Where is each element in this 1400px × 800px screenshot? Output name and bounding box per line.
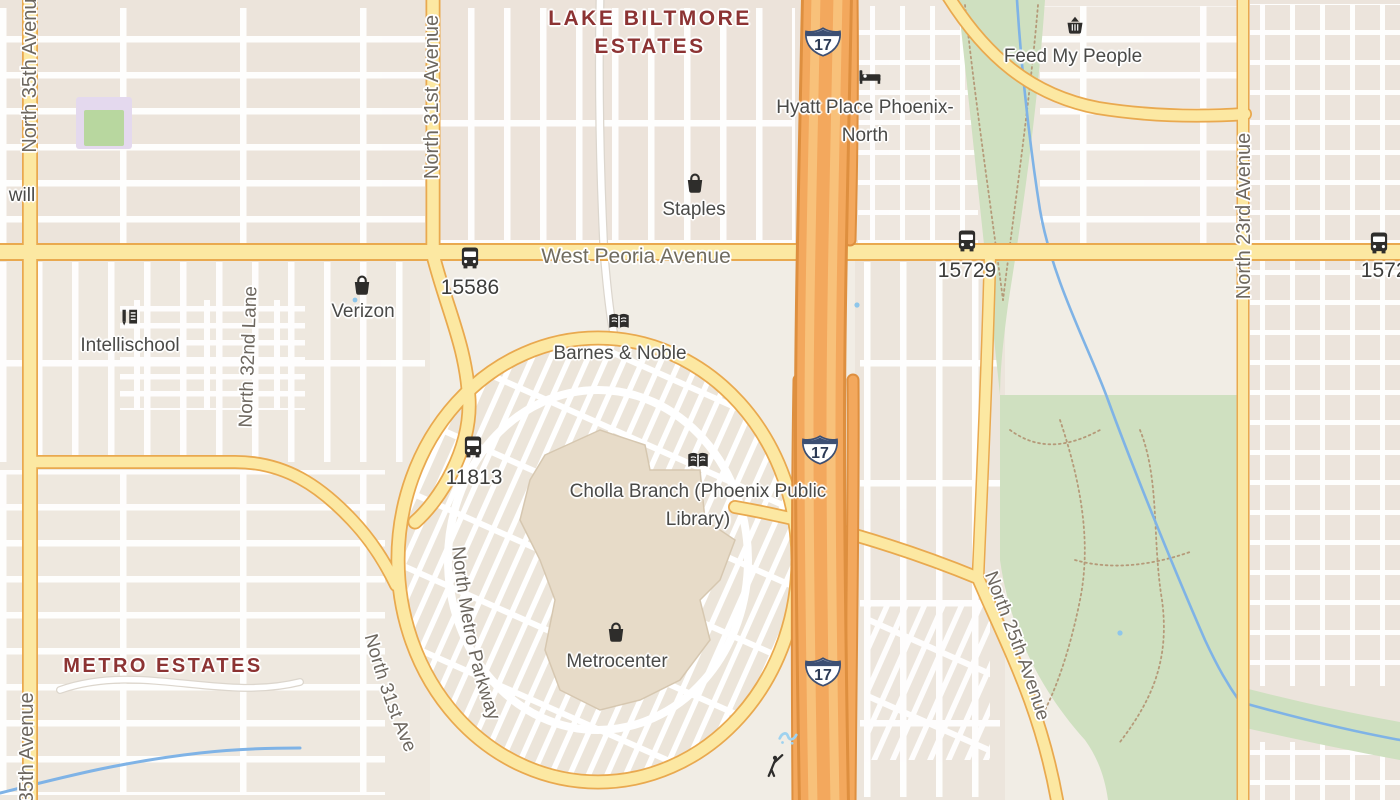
shopping-bag-icon	[604, 620, 628, 644]
hotel-icon	[858, 64, 882, 88]
school-field	[84, 110, 124, 146]
poi-label-metrocenter: Metrocenter	[566, 651, 667, 673]
bus-stop-icon	[457, 245, 483, 271]
poi-label-intellischool: Intellischool	[80, 335, 179, 357]
road-label-n35-bottom: North 35th Avenue	[16, 692, 38, 800]
poi-label-cholla-library: Cholla Branch (Phoenix Public Library)	[553, 478, 843, 534]
road-label-n31-top: North 31st Avenue	[421, 15, 443, 179]
poi-label-feed-my-people: Feed My People	[1004, 46, 1142, 68]
poi-label-goodwill-partial: will	[9, 185, 35, 207]
i17-shield-middle: 17	[802, 435, 838, 465]
poi-label-staples: Staples	[662, 199, 725, 221]
bus-stop-icon	[1366, 230, 1392, 256]
svg-text:17: 17	[814, 37, 832, 54]
bus-stop-icon	[460, 434, 486, 460]
poi-label-barnes-noble: Barnes & Noble	[553, 343, 686, 365]
neighborhood-label-metro-estates: METRO ESTATES	[63, 652, 263, 680]
bus-stop-label: 15729	[938, 259, 996, 283]
poi-label-hyatt: Hyatt Place Phoenix-North	[760, 94, 970, 150]
shopping-bag-icon	[350, 273, 374, 297]
map-viewport[interactable]: West Peoria Avenue North 35th Avenue Nor…	[0, 0, 1400, 800]
svg-text:17: 17	[811, 445, 829, 462]
bus-stop-label: 15727	[1361, 259, 1400, 283]
road-label-n35-top: North 35th Avenue	[19, 0, 41, 153]
bus-stop-label: 11813	[446, 466, 503, 490]
map-canvas[interactable]: West Peoria Avenue North 35th Avenue Nor…	[0, 0, 1400, 800]
book-icon	[686, 449, 710, 473]
shopping-bag-icon	[683, 171, 707, 195]
i17-shield-top: 17	[805, 27, 841, 57]
book-icon	[607, 310, 631, 334]
i17-shield-bottom: 17	[805, 657, 841, 687]
community-icon	[1063, 15, 1087, 39]
svg-text:17: 17	[814, 667, 832, 684]
neighborhood-label-lake-biltmore: LAKE BILTMORE ESTATES	[520, 5, 780, 61]
road-label-west-peoria: West Peoria Avenue	[541, 245, 731, 268]
water-feature-icon	[777, 726, 799, 748]
education-icon	[118, 306, 142, 330]
bus-stop-icon	[954, 228, 980, 254]
poi-label-verizon: Verizon	[331, 301, 394, 323]
golfer-icon	[760, 754, 784, 778]
bus-stop-label: 15586	[441, 276, 499, 300]
road-label-n23: North 23rd Avenue	[1233, 133, 1255, 299]
